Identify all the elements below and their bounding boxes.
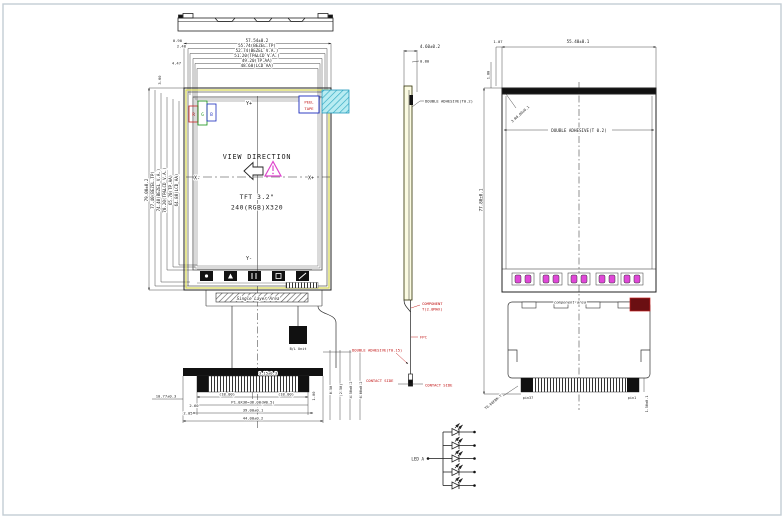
dim-label: 48.60(LCD AA) (241, 63, 274, 68)
component-cluster (540, 273, 562, 285)
side-contact-side-label-left: CONTACT SIDE (366, 378, 394, 383)
dim-label: 4.60±0.2 (420, 44, 441, 49)
dim-label: 39.00±0.1 (243, 408, 264, 413)
dim-label: 65.70(TP.AA) (168, 175, 173, 205)
dim-label: 1.07 (493, 39, 502, 44)
dim-label: 4.50±0.2 (349, 382, 353, 399)
dim-label: (18.00) (278, 392, 294, 397)
drawing-canvas: 57.54±0.2 55.74(BEZEL.TP) 52.74(BEZEL V.… (0, 0, 784, 519)
side-adhesive-top-label: DOUBLE ADHESIVE(T0.2) (425, 99, 473, 104)
pad-icon-3 (248, 271, 261, 281)
side-component-label: COMPONENT (422, 301, 443, 306)
component-cluster (596, 273, 618, 285)
side-adhesive-block (410, 95, 414, 105)
single-layer-area-label: Single Layer Area (237, 296, 280, 301)
axis-label-x-minus: X- (194, 176, 200, 182)
peel-tape-label: PEEL (304, 100, 314, 105)
component-cluster (621, 273, 643, 285)
dim-label: 6.00±0.2 (359, 382, 363, 399)
back-adhesive-label: DOUBLE ADHESIVE(T 0.2) (551, 128, 606, 133)
dim-label: 44.00±0.2 (243, 416, 264, 421)
connector-end-pad-right (298, 376, 309, 392)
axis-label-x-plus: X+ (308, 176, 314, 182)
dim-label: 0.90 (173, 38, 183, 43)
panel-type-label: TFT 3.2" (240, 193, 275, 201)
back-dark-component (630, 298, 650, 311)
dim-label: 55.40±0.1 (567, 39, 590, 44)
side-component-label: T(2.0MAX) (422, 307, 443, 312)
dim-label: 1.80 (487, 71, 491, 79)
dim-label: (18.00) (219, 392, 235, 397)
axis-label-y-minus: Y- (246, 256, 252, 262)
dim-label: 64.80(LCD AA) (174, 174, 179, 207)
dim-label: 70.20(TP&LCD V.A.) (162, 167, 167, 212)
component-cluster (512, 273, 534, 285)
pin1-label: pin1 (628, 396, 636, 400)
pin37-label: pin37 (523, 396, 534, 400)
side-contact-side-label-right: CONTACT SIDE (425, 383, 453, 388)
dim-label: 2.48 (177, 44, 187, 49)
dim-label: 79.00±0.2 (144, 178, 149, 201)
back-connector-pad-right (627, 378, 639, 392)
backlight-component-label: B/L Unit (290, 347, 307, 351)
dim-label: (2.50) (339, 384, 343, 397)
dim-label: 1.00 (311, 391, 316, 401)
back-connector-pad-left (521, 378, 533, 392)
sheet-border (3, 4, 781, 515)
dim-label: 74.40(BEZEL V.A.) (156, 169, 161, 212)
component-cluster (568, 273, 590, 285)
component-area-label: component area (554, 300, 587, 305)
back-glass-components (512, 273, 643, 285)
view-direction-label: VIEW DIRECTION (223, 153, 292, 161)
dim-label: 2.05 (183, 411, 192, 416)
stiffener-bar (183, 368, 323, 376)
pad-icon-4 (272, 271, 285, 281)
back-connector-pin-row (521, 378, 639, 392)
dim-label: 3.15±0.3 (259, 371, 277, 376)
dim-label: 1.50±0.1 (645, 396, 649, 413)
dim-label: 4.47 (172, 61, 181, 66)
connector-pin-row (197, 376, 309, 392)
panel-resolution-label: 240(RGB)X320 (231, 204, 283, 212)
connector-end-pad-left (197, 376, 208, 392)
dim-label: P1.0X36=36.00(W0.5) (231, 400, 274, 405)
peel-tape-label: TAPE (304, 106, 314, 111)
side-adhesive-bottom-label: DOUBLE ADHESIVE(T0.15) (352, 348, 402, 353)
led-anode-label: LED A (411, 457, 424, 462)
axis-label-y-plus: Y+ (246, 101, 252, 107)
side-polarizer-strip (404, 86, 412, 300)
dim-label: 0.80 (420, 59, 430, 64)
backlight-component (289, 326, 307, 344)
dim-label: 2.60 (189, 403, 199, 408)
peel-tape-patch (322, 90, 349, 113)
side-fpc-label: FPC (420, 335, 427, 340)
dim-label: 77.40(BEZEL.TP) (150, 171, 155, 209)
dim-label: 3.60 (157, 75, 162, 85)
dim-label: 10.77±0.3 (156, 394, 177, 399)
dim-label: 0.50 (329, 386, 333, 394)
dim-label: 77.80±0.1 (479, 188, 484, 211)
